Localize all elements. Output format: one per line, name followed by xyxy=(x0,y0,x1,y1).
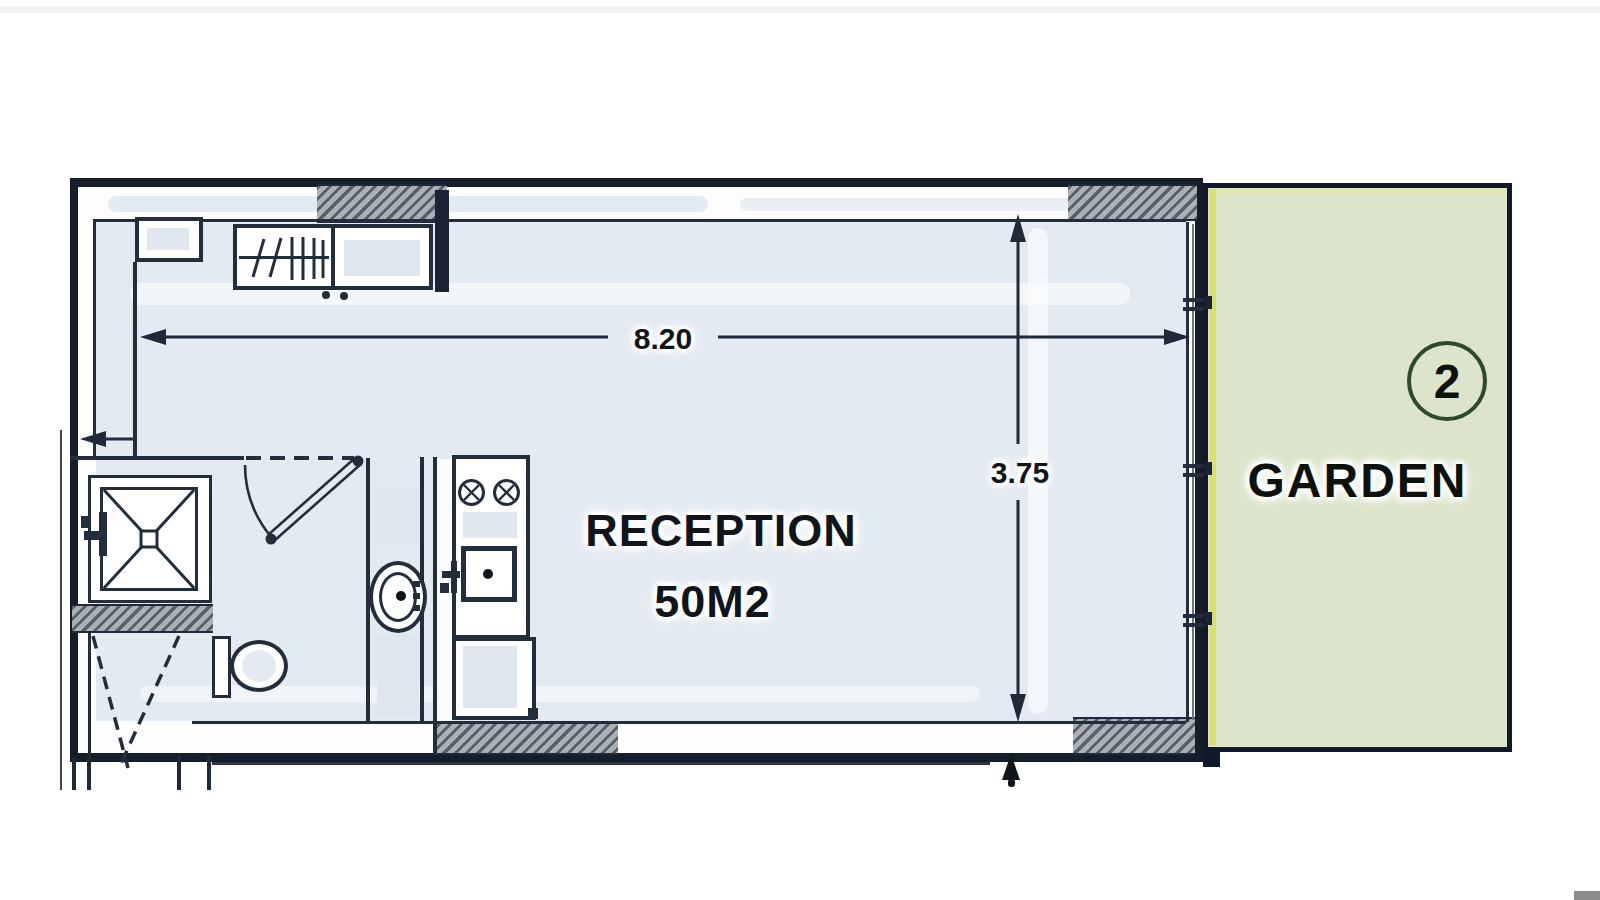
bathroom-wall xyxy=(70,456,244,460)
vanity-panel xyxy=(377,635,419,717)
garden-wall-stub xyxy=(1203,752,1220,767)
wall-stub xyxy=(207,755,211,790)
dimension-depth-label: 3.75 xyxy=(955,456,1085,490)
wall-stub xyxy=(87,755,91,790)
room-name-label: RECEPTION xyxy=(520,505,922,557)
wall-stub xyxy=(72,758,76,790)
bathroom-sink-basin xyxy=(379,572,417,622)
exterior-line xyxy=(60,430,62,790)
toilet-cistern xyxy=(212,636,231,698)
garden-number-badge: 2 xyxy=(1407,341,1487,421)
vanity-panel xyxy=(377,487,419,545)
window-glazing-line xyxy=(1192,224,1194,720)
kitchen-panel xyxy=(463,646,517,708)
shelf-cabinet-panel xyxy=(147,228,189,250)
wall-left xyxy=(70,178,78,762)
dimension-width-label: 8.20 xyxy=(600,322,726,356)
stove-burner-icon xyxy=(458,479,485,506)
wall-cavity xyxy=(437,459,452,721)
hatch-wall-segment xyxy=(1068,184,1197,221)
garden-label: GARDEN xyxy=(1203,453,1512,508)
scan-streak xyxy=(0,6,1600,13)
floor-plan: 2 GARDEN xyxy=(0,0,1600,900)
garden-edge-strip xyxy=(1216,189,1505,193)
page-corner-mark xyxy=(1574,891,1600,900)
inner-wall-line xyxy=(192,721,1186,724)
stove-burner-icon xyxy=(493,479,520,506)
wall-top xyxy=(70,178,1203,187)
kitchen-partition xyxy=(433,457,437,755)
wall-bottom xyxy=(70,753,1203,762)
void-wall-line xyxy=(88,633,91,755)
exterior-line xyxy=(212,762,990,765)
inner-wall-line xyxy=(93,219,1186,222)
window-frame-line xyxy=(1186,222,1189,722)
hatch-wall-segment xyxy=(437,722,618,755)
counter-end-post xyxy=(528,708,538,719)
hatch-wall-segment xyxy=(72,604,213,633)
hatch-wall-segment xyxy=(317,184,447,223)
wall-stub xyxy=(177,755,181,790)
shower-tray-inner xyxy=(100,487,198,591)
kitchen-sink xyxy=(461,546,517,602)
kitchen-panel xyxy=(463,512,517,538)
toilet-bowl-inner xyxy=(242,650,276,682)
bathroom-partition xyxy=(133,262,137,460)
wall-pier xyxy=(435,190,449,292)
garden-number: 2 xyxy=(1434,354,1461,409)
wardrobe-panel xyxy=(344,240,420,276)
room-area-label: 50M2 xyxy=(520,576,905,628)
wardrobe-divider xyxy=(331,226,335,288)
wardrobe-rail xyxy=(239,256,329,259)
inner-wall-line xyxy=(93,219,96,460)
